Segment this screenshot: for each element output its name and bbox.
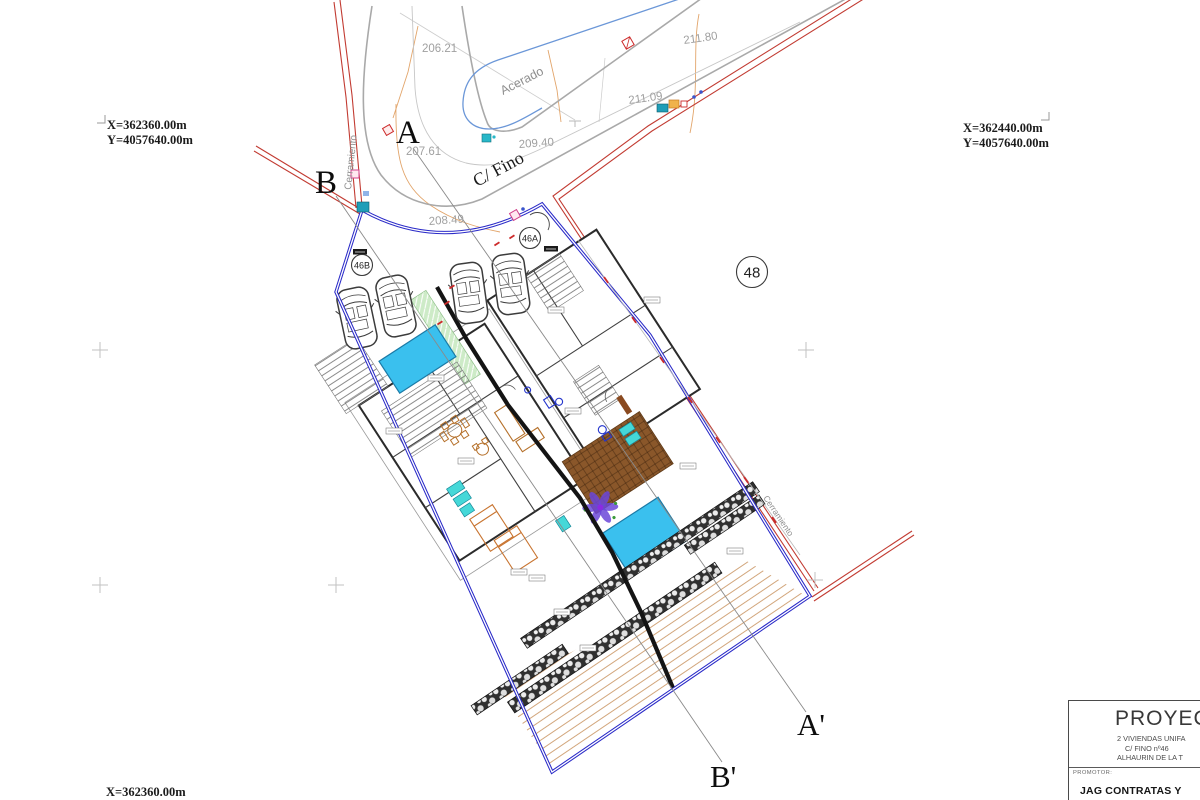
- street-cerramiento-right: Cerramiento: [761, 494, 796, 539]
- title-block-line1: 2 VIVIENDAS UNIFA: [1117, 734, 1186, 743]
- street-cerramiento-left: Cerramiento: [343, 134, 360, 190]
- title-block-project-label: PROYECTO: [1115, 707, 1200, 731]
- coordinate-label-top-left: X=362360.00m Y=4057640.00m: [107, 118, 193, 147]
- title-block: PROYECTO 2 VIVIENDAS UNIFA C/ FINO nº46 …: [1068, 700, 1200, 800]
- section-marker-a-prime: A': [797, 707, 825, 742]
- coordinate-x: X=362360.00m: [107, 118, 193, 133]
- section-marker-b: B: [315, 165, 337, 201]
- curb-line: [363, 0, 880, 206]
- elevation-209-40: 209.40: [518, 137, 554, 151]
- coordinate-x: X=362440.00m: [963, 121, 1049, 136]
- title-block-divider: [1069, 767, 1200, 768]
- title-block-line2: C/ FINO nº46: [1125, 744, 1169, 753]
- parcel-46b: 46B: [354, 261, 370, 271]
- street-acerado: Acerado: [498, 64, 546, 98]
- elevation-207-61: 207.61: [406, 146, 441, 158]
- elevation-206-21: 206.21: [422, 43, 457, 55]
- contour-line: [548, 50, 561, 122]
- title-block-promoter-label: PROMOTOR:: [1073, 770, 1112, 776]
- curb-line: [462, 0, 716, 131]
- parcel-48: 48: [744, 265, 761, 282]
- coordinate-x: X=362360.00m: [106, 785, 192, 800]
- street-c-fino: C/ Fino: [469, 147, 527, 190]
- parcel-46a: 46A: [522, 234, 538, 244]
- title-block-line3: ALHAURIN DE LA T: [1117, 753, 1183, 762]
- road-centerline: [412, 6, 800, 165]
- section-marker-b-prime: B': [710, 759, 736, 794]
- survey-tick: [569, 121, 581, 127]
- coordinate-y: Y=4057640.00m: [107, 133, 193, 148]
- coordinate-label-bottom-left: X=362360.00m Y=4057640.00m: [106, 785, 192, 800]
- site-plan-sheet: 46A 46B 48 A B A' B' 206.21 Acerado 211.…: [0, 0, 1200, 800]
- coordinate-y: Y=4057640.00m: [963, 136, 1049, 151]
- title-block-promoter-name: JAG CONTRATAS Y: [1080, 785, 1182, 797]
- coordinate-label-top-right: X=362440.00m Y=4057640.00m: [963, 121, 1049, 150]
- elevation-208-49: 208.49: [428, 214, 464, 228]
- elevation-211-80: 211.80: [683, 30, 719, 47]
